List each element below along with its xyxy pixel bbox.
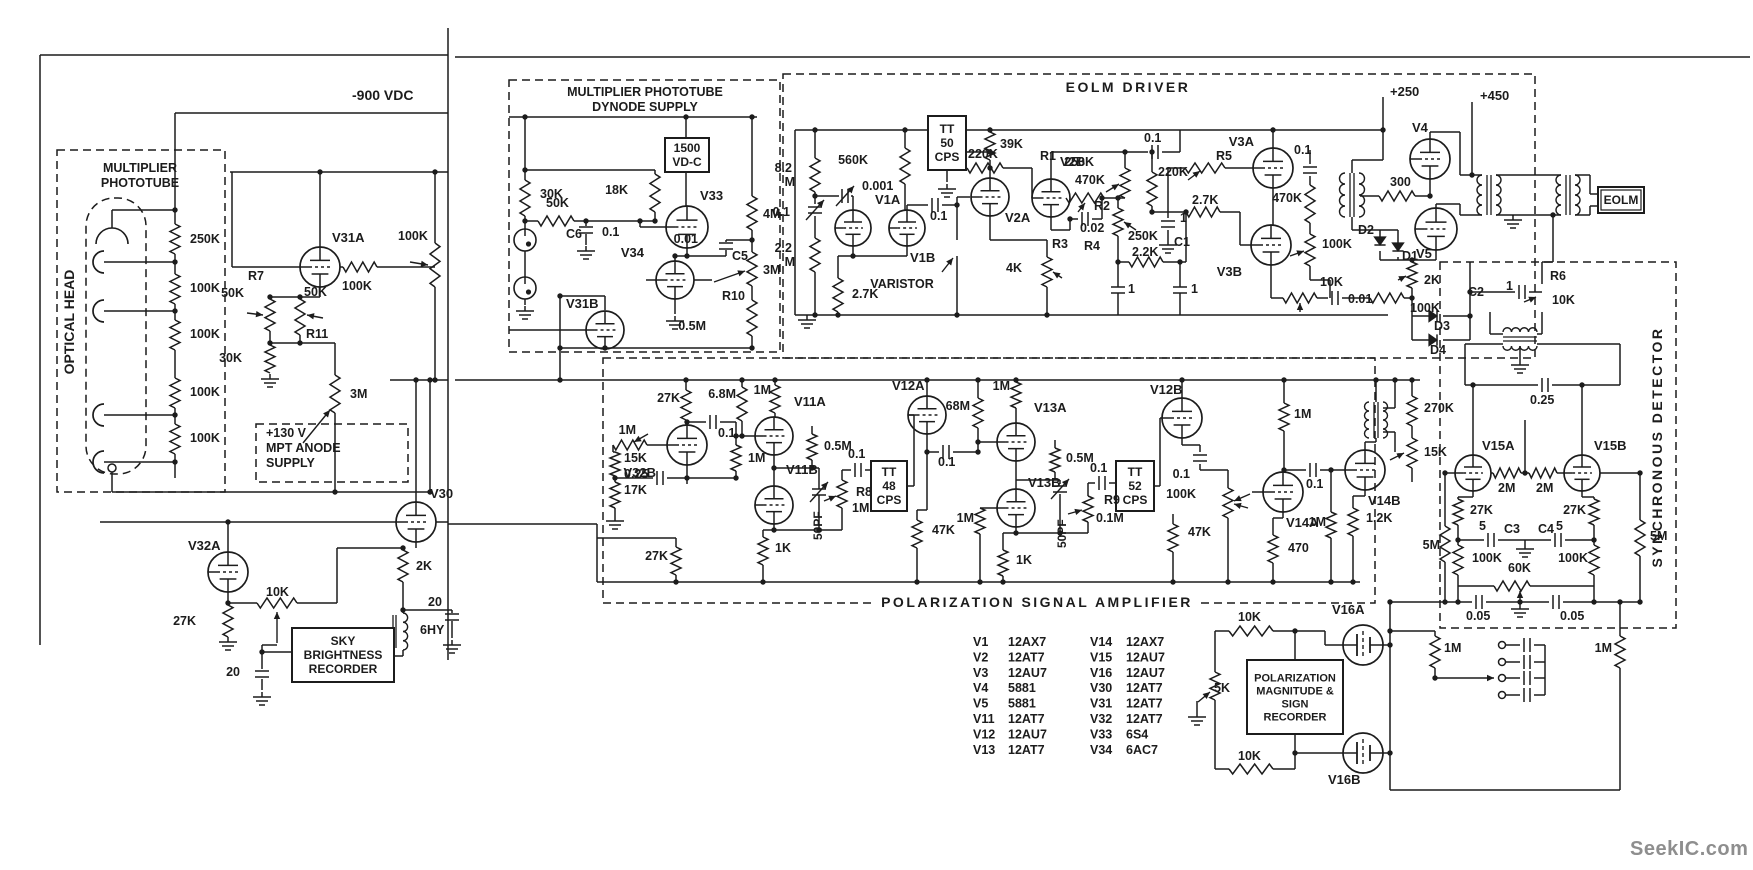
tube-list-entry: 12AU7 [1126, 666, 1165, 680]
resistor [747, 300, 757, 336]
tube-list-entry: 12AT7 [1008, 712, 1045, 726]
schematic-label: 1K [1016, 553, 1032, 567]
schematic-label: C6 [566, 227, 582, 241]
schematic-label: 10K [1552, 293, 1575, 307]
tube-list-entry: V2 [973, 650, 988, 664]
dynode-icon [93, 251, 104, 273]
schematic-page: 1500VD-CTT50CPSTT48CPSTT52CPSSKYBRIGHTNE… [0, 0, 1753, 870]
junction-dot [557, 377, 562, 382]
resistor [737, 387, 747, 421]
junction-dot [1455, 537, 1460, 542]
junction-dot [683, 114, 688, 119]
schematic-label: V11A [794, 394, 826, 409]
junction-dot [684, 475, 689, 480]
schematic-label: +130 V [266, 426, 307, 440]
tube-list-entry: 5881 [1008, 681, 1036, 695]
schematic-label: 0.1 [938, 455, 955, 469]
schematic-label: V3A [1229, 134, 1255, 149]
junction-dot [1409, 295, 1414, 300]
box-label: TT [882, 465, 897, 479]
schematic-label: 50PF [1055, 519, 1069, 548]
schematic-label: 10K [1320, 275, 1343, 289]
tube-list-entry: 12AT7 [1008, 743, 1045, 757]
junction-dot [1122, 149, 1127, 154]
junction-dot [1328, 467, 1333, 472]
box-label: CPS [935, 150, 960, 164]
junction-dot [771, 527, 776, 532]
schematic-label: 0.05 [1560, 609, 1584, 623]
schematic-label: V31A [332, 230, 365, 245]
schematic-label: 0.5M [678, 319, 706, 333]
junction-dot [1591, 537, 1596, 542]
junction-dot [400, 545, 405, 550]
box-label: 1500 [674, 141, 701, 155]
tube-list-entry: V32 [1090, 712, 1112, 726]
resistor [1453, 545, 1463, 575]
resistor [223, 605, 233, 637]
schematic-label: 1M [754, 383, 771, 397]
junction-dot [1579, 382, 1584, 387]
tube-list-entry: V31 [1090, 697, 1112, 711]
schematic-label: 4K [1006, 261, 1022, 275]
tube-list-entry: V12 [973, 727, 995, 741]
schematic-label: 100K [190, 431, 220, 445]
arrow-head [1053, 272, 1061, 279]
resistor [833, 278, 843, 312]
tube-list-entry: V1 [973, 635, 988, 649]
resistor [1589, 499, 1599, 525]
junction-dot [1373, 377, 1378, 382]
resistor [610, 452, 620, 476]
schematic-label: 100K [1166, 487, 1196, 501]
resistor [1370, 293, 1404, 303]
resistor [170, 224, 180, 254]
resistor [1011, 382, 1021, 408]
schematic-label: 8.2 [775, 161, 792, 175]
resistor [1168, 524, 1178, 552]
schematic-label: 100K [1472, 551, 1502, 565]
section-box-dynode-supply [509, 80, 780, 352]
junction-dot [172, 459, 177, 464]
tube-list-entry: V5 [973, 697, 988, 711]
switch-contact [1499, 692, 1506, 699]
schematic-label: 39K [1000, 137, 1023, 151]
box-label: EOLM [1604, 193, 1639, 207]
schematic-label: 0.01 [1348, 292, 1372, 306]
junction-dot [1470, 382, 1475, 387]
schematic-label: R5 [1216, 149, 1232, 163]
schematic-label: 0.1 [718, 426, 735, 440]
resistor [613, 440, 647, 450]
schematic-label: C2 [1468, 285, 1484, 299]
junction-dot [602, 345, 607, 350]
schematic-label: 6.8M [708, 387, 736, 401]
schematic-label: 0.25 [1530, 393, 1554, 407]
resistor [1147, 172, 1157, 206]
junction-dot [749, 237, 754, 242]
tube-list-entry: 12AX7 [1008, 635, 1046, 649]
resistor [1326, 512, 1336, 538]
schematic-label: 10K [1238, 610, 1261, 624]
junction-dot [267, 294, 272, 299]
schematic-label: C5 [732, 249, 748, 263]
schematic-label: D2 [1358, 223, 1374, 237]
junction-dot [812, 193, 817, 198]
schematic-label: 1M [957, 511, 974, 525]
schematic-label: 0.1 [848, 447, 865, 461]
schematic-label: V13A [1034, 400, 1067, 415]
junction-dot [684, 419, 689, 424]
resistor [1186, 207, 1220, 217]
box-label: VD-C [672, 155, 702, 169]
schematic-label: 0.1 [602, 225, 619, 239]
gas-tube-icon [526, 241, 531, 246]
resistor [170, 320, 180, 350]
junction-dot [637, 218, 642, 223]
schematic-label: 1M [852, 501, 869, 515]
resistor [1185, 163, 1225, 173]
schematic-label: 2.7K [852, 287, 878, 301]
arrow-head [1487, 675, 1494, 681]
junction-dot [975, 439, 980, 444]
schematic-label: V12A [892, 378, 925, 393]
schematic-label: C3 [1504, 522, 1520, 536]
resistor [1305, 185, 1315, 223]
resistor [1268, 535, 1278, 563]
junction-dot [835, 312, 840, 317]
schematic-label: 50K [304, 285, 327, 299]
schematic-label: DYNODE SUPPLY [592, 100, 698, 114]
junction-dot [672, 253, 677, 258]
schematic-label: 50K [221, 286, 244, 300]
schematic-label: 47K [932, 523, 955, 537]
resistor [430, 243, 440, 287]
schematic-label: V11B [786, 462, 818, 477]
schematic-label: D4 [1430, 343, 1446, 357]
resistor [520, 180, 530, 216]
resistor [770, 385, 780, 413]
schematic-canvas: 1500VD-CTT50CPSTT48CPSTT52CPSSKYBRIGHTNE… [0, 0, 1753, 870]
transformer-icon [1365, 402, 1370, 438]
schematic-label: C1 [1174, 235, 1190, 249]
schematic-label: R8 [856, 485, 872, 499]
resistor [1229, 764, 1273, 774]
junction-dot [1550, 212, 1555, 217]
resistor [1453, 499, 1463, 525]
junction-dot [987, 127, 992, 132]
junction-dot [987, 165, 992, 170]
schematic-label: 27K [173, 614, 196, 628]
resistor [1635, 520, 1645, 556]
schematic-label: V13B [1028, 475, 1061, 490]
schematic-label: 5 [1479, 519, 1486, 533]
schematic-label: 100K [1558, 551, 1588, 565]
schematic-label: 100K [342, 279, 372, 293]
schematic-label: 30K [219, 351, 242, 365]
schematic-label: 100K [190, 385, 220, 399]
arrow-head [1124, 222, 1132, 229]
transformer-icon [1340, 173, 1346, 217]
resistor [1493, 468, 1521, 478]
resistor [1279, 403, 1289, 431]
schematic-label: 1M [619, 423, 636, 437]
schematic-label: 470 [1288, 541, 1309, 555]
schematic-label: 270K [1424, 401, 1454, 415]
schematic-label: M [785, 175, 795, 189]
resistor [681, 390, 691, 420]
junction-dot [1455, 599, 1460, 604]
schematic-label: VARISTOR [870, 277, 933, 291]
schematic-label: 2M [1498, 481, 1515, 495]
resistor [610, 482, 620, 508]
resistor [1379, 191, 1415, 201]
tube-list-entry: V33 [1090, 727, 1112, 741]
junction-dot [673, 579, 678, 584]
arrow-head [1296, 250, 1304, 256]
junction-dot [1350, 579, 1355, 584]
schematic-label: 3M [350, 387, 367, 401]
transformer-icon [403, 613, 408, 650]
junction-dot [1517, 599, 1522, 604]
resistor [1407, 396, 1417, 426]
resistor [671, 547, 681, 575]
resistor [967, 163, 1003, 173]
transformer-icon [1503, 328, 1537, 332]
schematic-label: 0.1 [773, 205, 790, 219]
resistor [650, 174, 660, 212]
junction-dot [1270, 127, 1275, 132]
junction-dot [652, 218, 657, 223]
junction-dot [522, 114, 527, 119]
junction-dot [749, 114, 754, 119]
box-label: MAGNITUDE & [1256, 685, 1334, 697]
junction-dot [225, 600, 230, 605]
schematic-label: 2K [1424, 273, 1440, 287]
junction-dot [1281, 377, 1286, 382]
box-label: SKY [331, 634, 356, 648]
junction-dot [432, 377, 437, 382]
schematic-label: 1 [1506, 279, 1513, 293]
box-label: 50 [940, 136, 954, 150]
resistor [265, 345, 275, 373]
resistor [1042, 257, 1052, 287]
schematic-label: 1 [1191, 282, 1198, 296]
schematic-label: 100K [1322, 237, 1352, 251]
switch-contact [1499, 675, 1506, 682]
schematic-label: V16B [1328, 772, 1361, 787]
junction-dot [317, 169, 322, 174]
schematic-label: SUPPLY [266, 456, 316, 470]
schematic-label: 5 [1556, 519, 1563, 533]
resistor [1283, 293, 1317, 303]
tube-list-entry: 12AT7 [1126, 712, 1163, 726]
schematic-label: 0.1 [1306, 477, 1323, 491]
arrow-head [1517, 591, 1523, 598]
resistor [900, 148, 910, 184]
junction-dot [172, 308, 177, 313]
schematic-label: V5 [1416, 246, 1432, 261]
junction-dot [1013, 530, 1018, 535]
junction-dot [1387, 642, 1392, 647]
tube-list-entry: 6AC7 [1126, 743, 1158, 757]
schematic-label: 100K [190, 281, 220, 295]
box-label: 52 [1128, 479, 1142, 493]
schematic-label: 1M [993, 379, 1010, 393]
schematic-label: 0.1 [1173, 467, 1190, 481]
schematic-label: V31B [566, 296, 599, 311]
schematic-label: 27K [1470, 503, 1493, 517]
junction-dot [1281, 467, 1286, 472]
schematic-label: C4 [1538, 522, 1554, 536]
schematic-label: MULTIPLIER [103, 161, 177, 175]
box-label: RECORDER [309, 662, 378, 676]
schematic-label: V33 [700, 188, 723, 203]
gas-tube-icon [526, 289, 531, 294]
junction-dot [172, 207, 177, 212]
junction-dot [172, 412, 177, 417]
schematic-label: 5M [1650, 529, 1667, 543]
schematic-label: 10K [1238, 749, 1261, 763]
schematic-label: 1.2K [1366, 511, 1392, 525]
resistor [998, 550, 1008, 576]
junction-dot [1328, 579, 1333, 584]
junction-dot [975, 449, 980, 454]
junction-dot [1044, 312, 1049, 317]
junction-dot [975, 377, 980, 382]
watermark: SeekIC.com [1630, 838, 1748, 861]
tube-list-entry: 12AU7 [1126, 650, 1165, 664]
schematic-label: 3M [763, 263, 780, 277]
box-label: POLARIZATION [1254, 672, 1336, 684]
junction-dot [1387, 750, 1392, 755]
junction-dot [1149, 209, 1154, 214]
diode-icon [1374, 237, 1385, 245]
schematic-label: 17K [624, 483, 647, 497]
schematic-label: 5M [1423, 538, 1440, 552]
resistor [747, 252, 757, 286]
switch-contact [1499, 659, 1506, 666]
junction-dot [267, 340, 272, 345]
anode-terminal [108, 464, 116, 472]
resistor [1615, 636, 1625, 668]
junction-dot [739, 433, 744, 438]
transformer-icon [1496, 175, 1501, 215]
junction-dot [1149, 149, 1154, 154]
junction-dot [1637, 470, 1642, 475]
junction-dot [1387, 599, 1392, 604]
junction-dot [1225, 579, 1230, 584]
box-label: BRIGHTNESS [304, 648, 383, 662]
junction-dot [332, 489, 337, 494]
arrow-head [421, 261, 428, 267]
junction-dot [1292, 628, 1297, 633]
schematic-label: R7 [248, 269, 264, 283]
tube-list-entry: V14 [1090, 635, 1112, 649]
schematic-label: 27K [645, 549, 668, 563]
resistor [731, 445, 741, 471]
schematic-label: +450 [1480, 88, 1509, 103]
junction-dot [413, 377, 418, 382]
junction-dot [522, 218, 527, 223]
schematic-label: 1 [1180, 211, 1187, 225]
resistor [837, 480, 847, 508]
junction-dot [557, 345, 562, 350]
resistor [747, 196, 757, 230]
schematic-label: V32B [623, 465, 656, 480]
schematic-label: R6 [1550, 269, 1566, 283]
resistor [295, 299, 305, 335]
arrow-head [1297, 303, 1303, 310]
schematic-label: V16A [1332, 602, 1365, 617]
schematic-label: 68M [946, 399, 970, 413]
transformer-icon [1359, 173, 1365, 217]
tube-list-entry: 12AT7 [1008, 650, 1045, 664]
transformer-icon [1575, 175, 1580, 215]
cathode-arc [96, 228, 128, 244]
junction-dot [683, 377, 688, 382]
resistor [538, 216, 574, 226]
schematic-label: 2.7K [1192, 193, 1218, 207]
junction-dot [1170, 579, 1175, 584]
schematic-label: MULTIPLIER PHOTOTUBE [567, 85, 723, 99]
schematic-label: 470K [1075, 173, 1105, 187]
schematic-label: 1M [1309, 515, 1326, 529]
schematic-label: 220K [968, 147, 998, 161]
resistor [1440, 526, 1450, 562]
schematic-label: 0.01 [674, 232, 698, 246]
resistor [330, 375, 340, 413]
tube-list-entry: 12AT7 [1126, 681, 1163, 695]
schematic-label: V3B [1217, 264, 1242, 279]
tube-list-entry: V15 [1090, 650, 1112, 664]
schematic-label: 50K [546, 196, 569, 210]
junction-dot [522, 167, 527, 172]
junction-dot [812, 127, 817, 132]
resistor [1305, 234, 1315, 266]
junction-dot [924, 377, 929, 382]
arrow-head [1192, 171, 1200, 178]
junction-dot [1115, 195, 1120, 200]
junction-dot [583, 218, 588, 223]
schematic-label: R11 [306, 327, 328, 341]
schematic-label: 1M [1444, 641, 1461, 655]
arrow-head [307, 313, 314, 319]
schematic-label: 0.001 [862, 179, 893, 193]
resistor [398, 550, 408, 582]
schematic-label: 27K [1563, 503, 1586, 517]
resistor [975, 508, 985, 534]
junction-dot [1392, 377, 1397, 382]
junction-dot [1292, 750, 1297, 755]
box-label: RECORDER [1264, 711, 1327, 723]
schematic-label: 2K [416, 559, 432, 573]
schematic-label: 0.1M [1096, 511, 1124, 525]
schematic-label: 0.1 [930, 209, 947, 223]
schematic-label: R10 [722, 289, 745, 303]
schematic-label: 1M [1294, 407, 1311, 421]
tube-list-entry: V13 [973, 743, 995, 757]
schematic-label: 27K [657, 391, 680, 405]
resistor [257, 598, 297, 608]
junction-dot [1617, 599, 1622, 604]
schematic-label: V1B [910, 250, 935, 265]
schematic-label: 20 [226, 665, 240, 679]
schematic-label: -900 VDC [352, 87, 413, 103]
junction-dot [1000, 579, 1005, 584]
box-label: TT [940, 122, 955, 136]
schematic-label: R1 [1040, 149, 1056, 163]
junction-dot [1469, 172, 1474, 177]
